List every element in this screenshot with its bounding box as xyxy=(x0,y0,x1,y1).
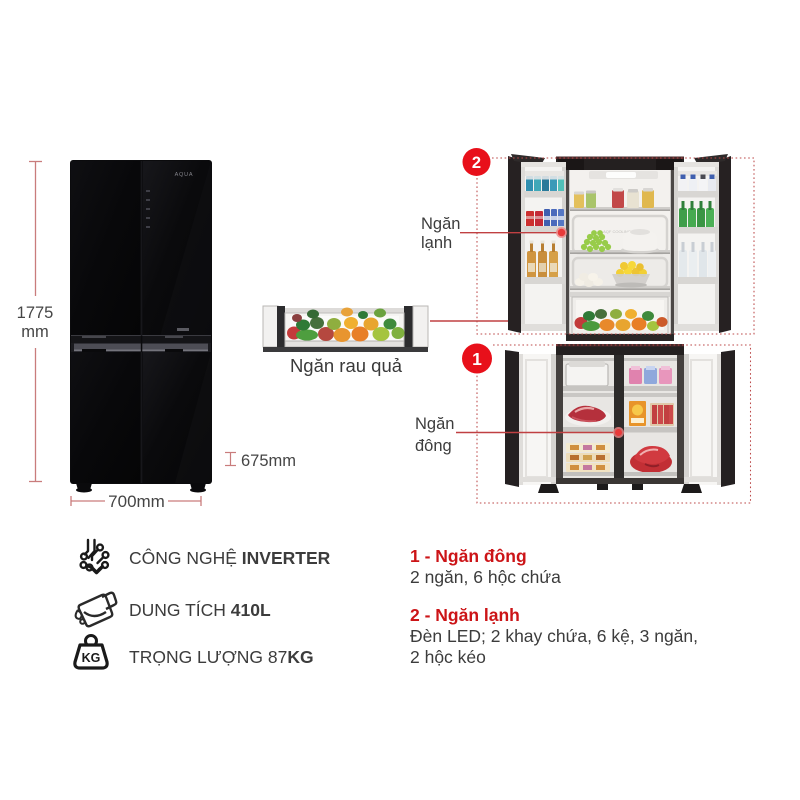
svg-text:1 - Ngăn đông: 1 - Ngăn đông xyxy=(410,546,527,566)
svg-text:Ngăn: Ngăn xyxy=(415,415,454,433)
svg-text:700mm: 700mm xyxy=(108,492,165,511)
svg-text:KG: KG xyxy=(82,651,101,665)
svg-text:2 ngăn, 6 hộc chứa: 2 ngăn, 6 hộc chứa xyxy=(410,567,561,587)
svg-text:1: 1 xyxy=(472,349,482,369)
svg-text:CÔNG NGHỆ INVERTER: CÔNG NGHỆ INVERTER xyxy=(129,547,331,568)
svg-text:mm: mm xyxy=(21,323,49,341)
svg-text:DUNG TÍCH 410L: DUNG TÍCH 410L xyxy=(129,600,271,620)
svg-text:2 hộc kéo: 2 hộc kéo xyxy=(410,647,486,667)
svg-text:675mm: 675mm xyxy=(241,452,296,470)
svg-text:đông: đông xyxy=(415,437,452,455)
svg-text:2: 2 xyxy=(472,154,481,172)
svg-text:lạnh: lạnh xyxy=(421,234,452,252)
svg-text:Ngăn rau quả: Ngăn rau quả xyxy=(290,355,403,376)
svg-text:AQUA: AQUA xyxy=(175,172,194,178)
svg-text:Đèn LED; 2 khay chứa, 6 kệ, 3: Đèn LED; 2 khay chứa, 6 kệ, 3 ngăn, xyxy=(410,626,698,646)
svg-text:1775: 1775 xyxy=(17,304,54,322)
svg-text:TRỌNG LƯỢNG 87KG: TRỌNG LƯỢNG 87KG xyxy=(129,647,314,667)
svg-text:2 - Ngăn lạnh: 2 - Ngăn lạnh xyxy=(410,605,520,625)
svg-text:Ngăn: Ngăn xyxy=(421,215,460,233)
